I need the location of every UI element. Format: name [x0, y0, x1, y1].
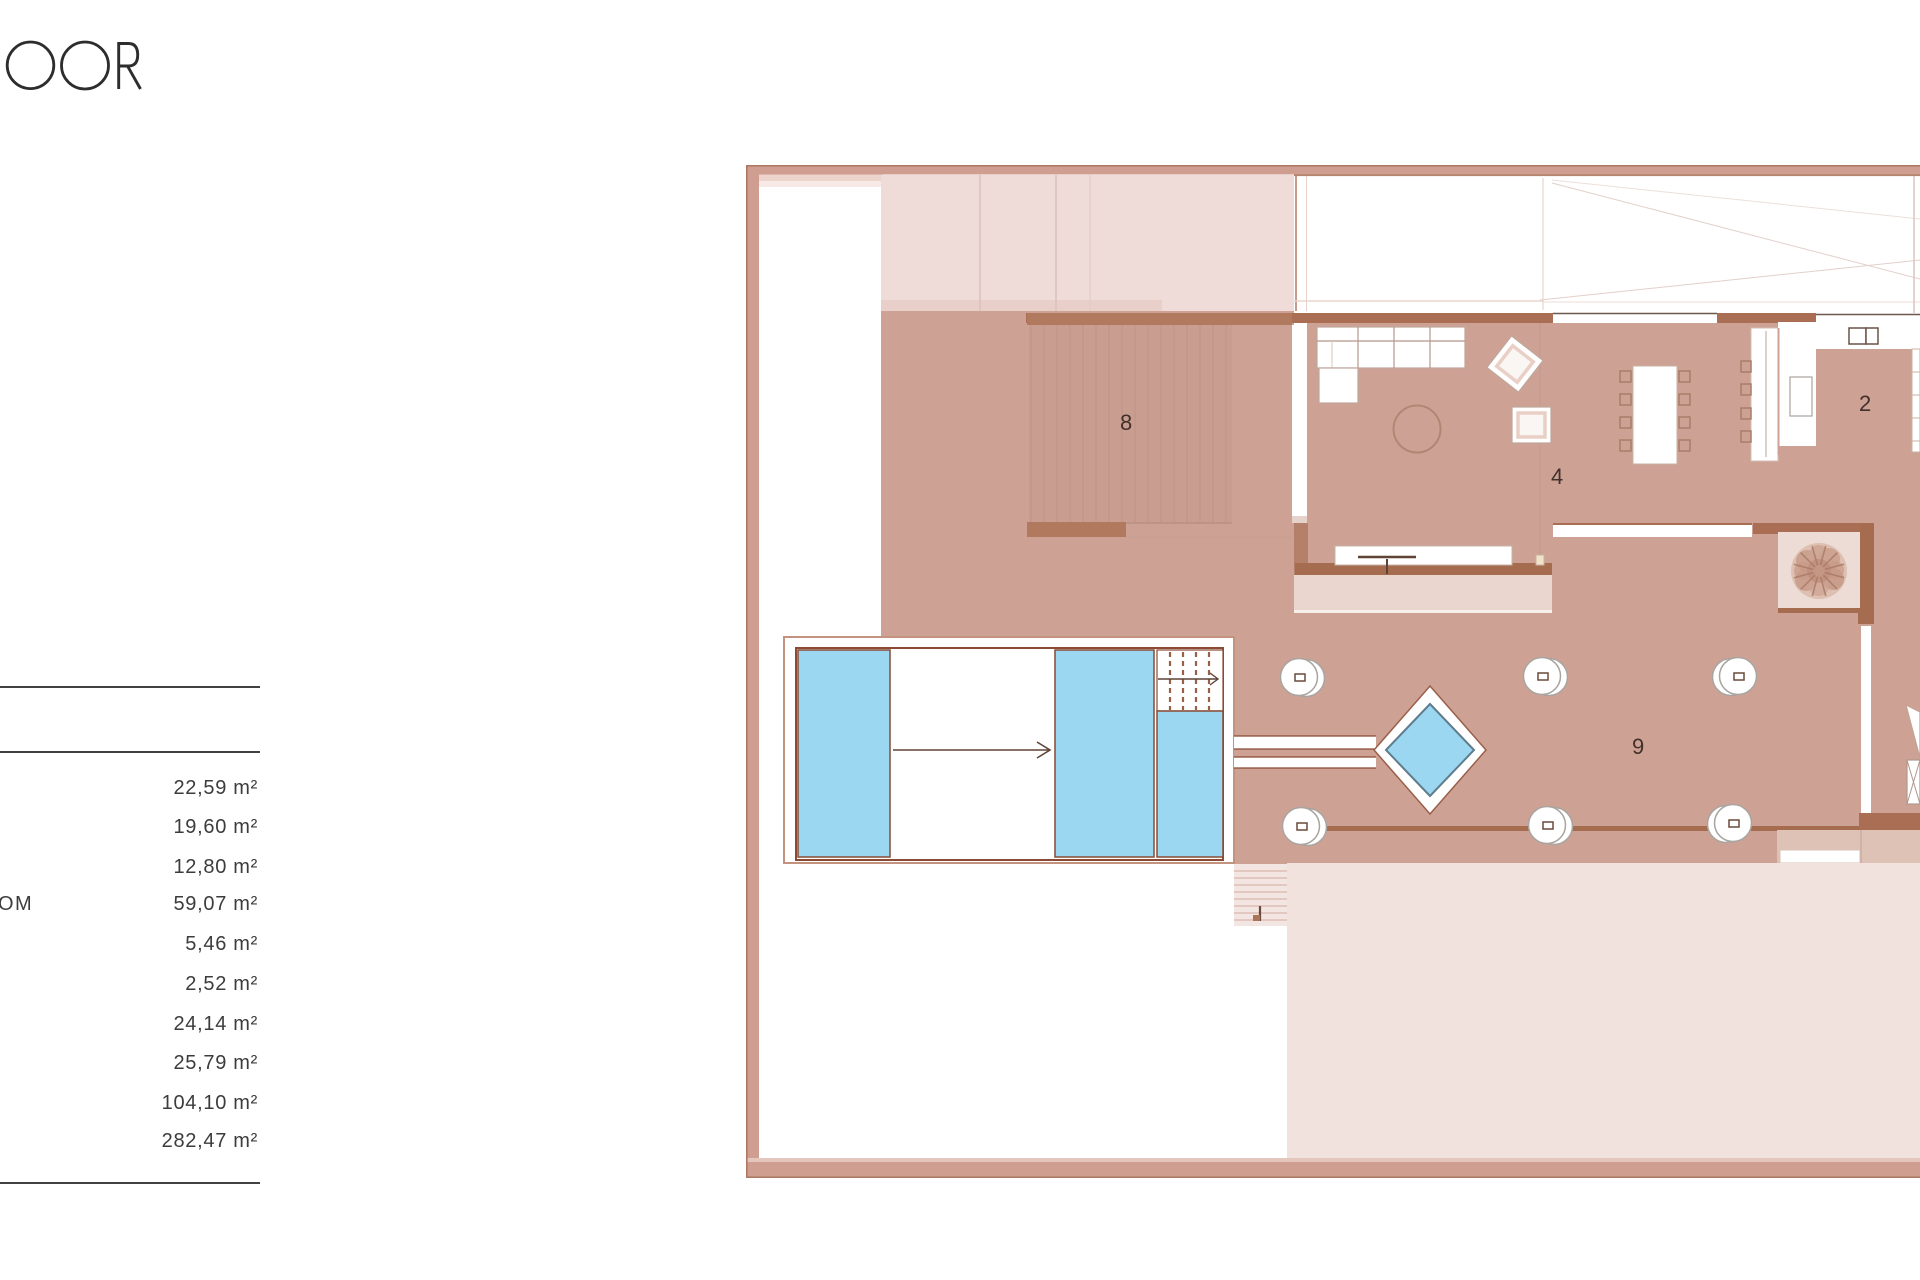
svg-text:9: 9: [1632, 734, 1644, 759]
svg-text:2: 2: [1859, 391, 1871, 416]
svg-text:4: 4: [1551, 464, 1563, 489]
svg-text:8: 8: [1120, 410, 1132, 435]
